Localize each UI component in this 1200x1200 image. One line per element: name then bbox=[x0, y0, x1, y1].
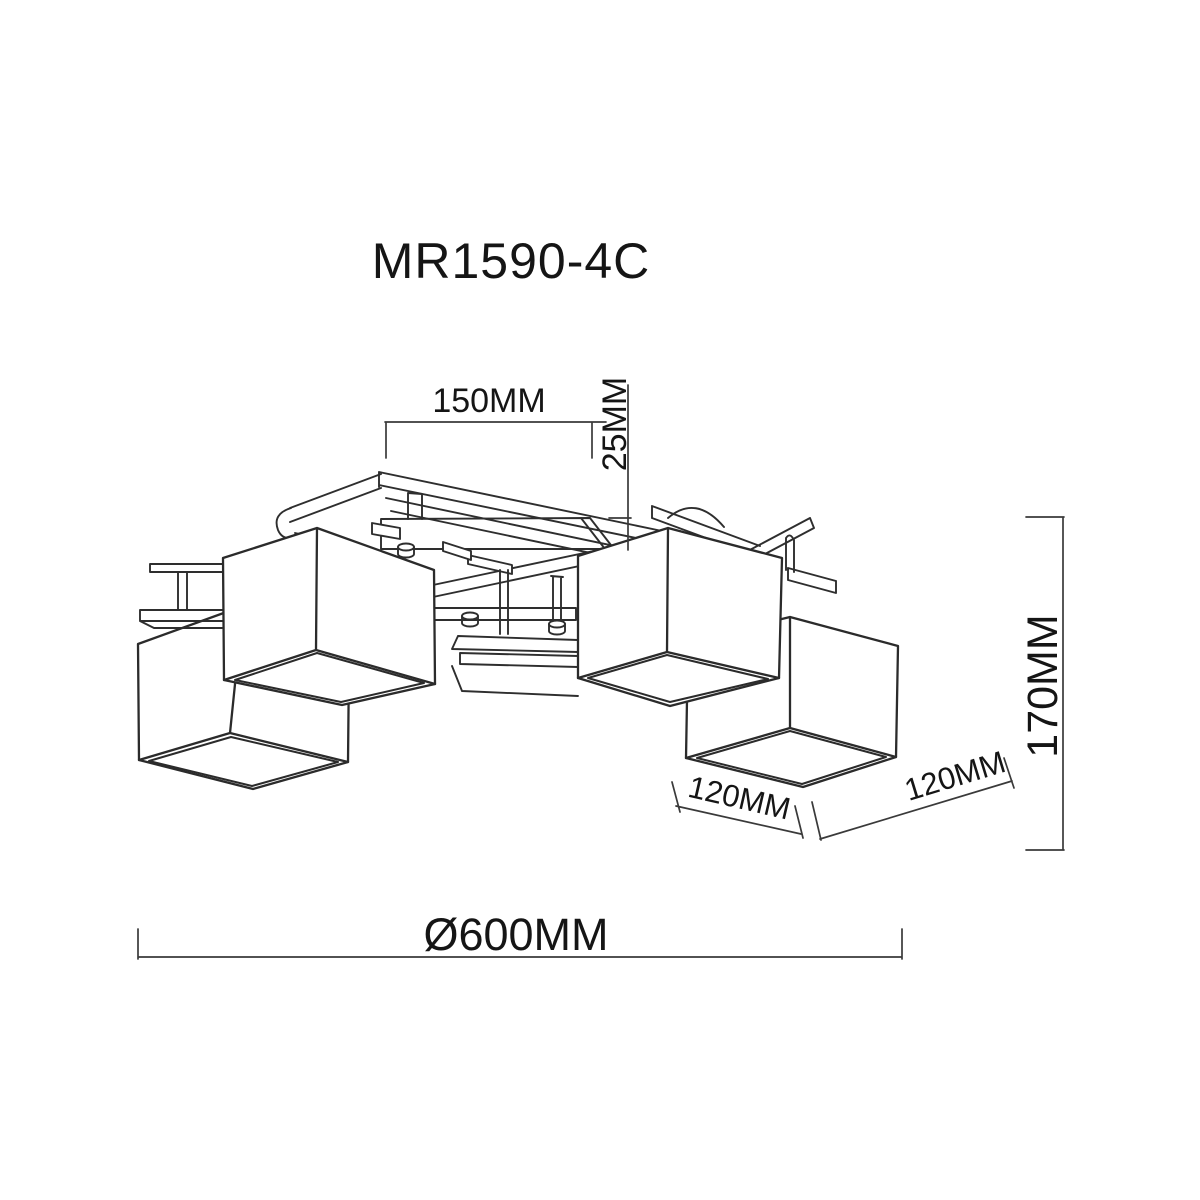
shade-body bbox=[578, 528, 782, 706]
dim-canopy-offset-25mm: 25MM bbox=[596, 377, 634, 550]
dim-label-150mm: 150MM bbox=[432, 382, 545, 420]
dim-label-600mm: Ø600MM bbox=[423, 909, 608, 960]
shade-left-rear bbox=[223, 528, 435, 705]
bracket-bar bbox=[150, 564, 226, 572]
screw-nut bbox=[462, 613, 478, 627]
dim-label-25mm: 25MM bbox=[596, 377, 634, 471]
arm-plate-left bbox=[372, 523, 400, 539]
dim-label-170mm: 170MM bbox=[1019, 614, 1067, 757]
screw-nut bbox=[398, 544, 414, 558]
center-dish bbox=[452, 666, 578, 696]
bracket-rounded-holder bbox=[668, 508, 724, 527]
nut-top bbox=[549, 621, 565, 628]
rail-plate bbox=[468, 555, 512, 574]
shade-body bbox=[223, 528, 435, 705]
nut-top bbox=[398, 544, 414, 551]
dim-fixture-height-170mm: 170MM bbox=[1019, 517, 1067, 850]
technical-drawing-page: MR1590-4C bbox=[0, 0, 1200, 1200]
rail-plate-small bbox=[443, 542, 471, 560]
ceiling-light-technical-drawing: MR1590-4C bbox=[0, 0, 1200, 1200]
dim-line bbox=[385, 422, 606, 458]
center-plate-lower bbox=[460, 653, 578, 667]
bracket-plate bbox=[788, 568, 836, 593]
bracket-post bbox=[178, 572, 187, 610]
hanger-rod-left bbox=[500, 570, 508, 634]
product-title: MR1590-4C bbox=[372, 233, 651, 289]
hanger-rod-center bbox=[551, 576, 563, 622]
support-bar bbox=[430, 608, 576, 620]
shade-right-rear bbox=[578, 528, 782, 706]
dim-overall-diameter-600mm: Ø600MM bbox=[138, 909, 902, 960]
dim-arm-spacing-150mm: 150MM bbox=[385, 382, 606, 458]
screw-nut bbox=[549, 621, 565, 635]
fixture-drawing bbox=[138, 472, 898, 789]
arm-upper-left bbox=[290, 474, 381, 522]
center-plate-upper bbox=[452, 636, 578, 652]
nut-top bbox=[462, 613, 478, 620]
